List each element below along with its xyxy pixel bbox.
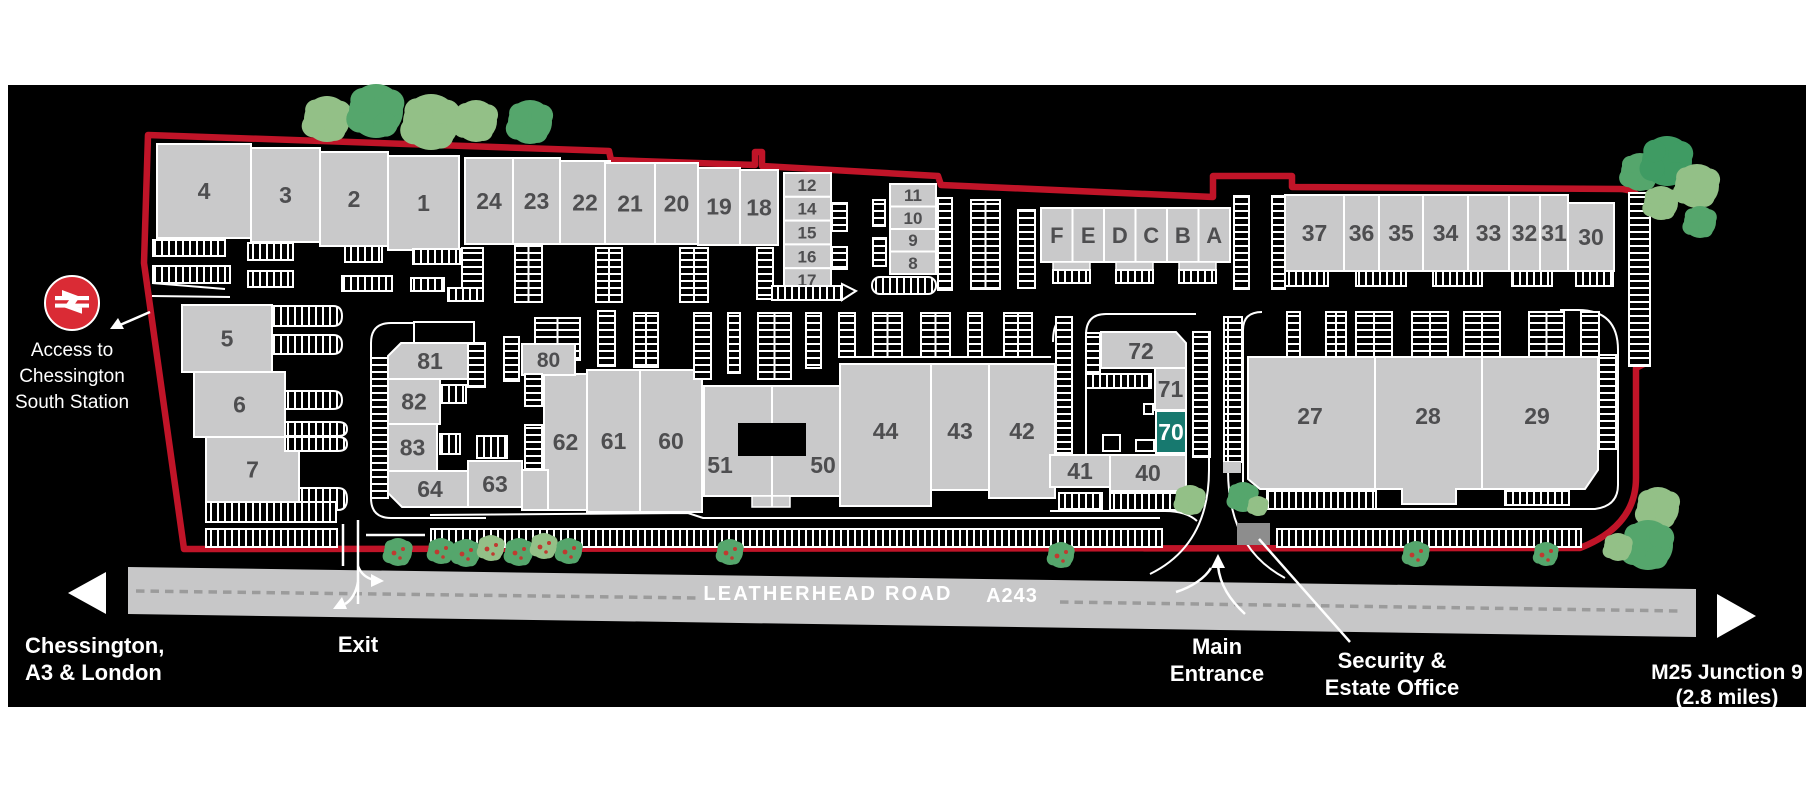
svg-text:81: 81 xyxy=(417,348,443,374)
svg-text:1: 1 xyxy=(417,190,430,216)
svg-text:D: D xyxy=(1112,223,1128,248)
svg-text:(2.8 miles): (2.8 miles) xyxy=(1676,686,1779,709)
svg-text:Chessington: Chessington xyxy=(19,366,125,387)
svg-text:72: 72 xyxy=(1128,338,1154,364)
svg-text:41: 41 xyxy=(1067,458,1093,484)
svg-text:51: 51 xyxy=(707,452,733,478)
svg-text:7: 7 xyxy=(246,457,259,483)
svg-text:71: 71 xyxy=(1158,376,1184,402)
svg-text:27: 27 xyxy=(1297,403,1323,429)
svg-text:5: 5 xyxy=(221,326,234,352)
svg-text:LEATHERHEAD ROAD: LEATHERHEAD ROAD xyxy=(703,583,952,605)
svg-text:83: 83 xyxy=(400,435,426,461)
svg-text:Security &: Security & xyxy=(1338,648,1447,673)
svg-text:15: 15 xyxy=(798,224,817,243)
svg-text:10: 10 xyxy=(904,209,923,228)
svg-text:36: 36 xyxy=(1349,220,1375,246)
svg-text:16: 16 xyxy=(798,247,817,266)
svg-text:63: 63 xyxy=(482,471,508,497)
svg-text:14: 14 xyxy=(798,200,817,219)
svg-text:E: E xyxy=(1081,223,1096,248)
svg-text:Access to: Access to xyxy=(31,340,113,361)
svg-text:Entrance: Entrance xyxy=(1170,661,1264,686)
svg-text:Chessington,: Chessington, xyxy=(25,633,164,658)
svg-text:64: 64 xyxy=(417,476,443,502)
svg-text:24: 24 xyxy=(476,188,502,214)
svg-text:21: 21 xyxy=(617,191,643,217)
svg-text:61: 61 xyxy=(601,428,627,454)
svg-text:70: 70 xyxy=(1158,419,1184,445)
svg-text:A3 & London: A3 & London xyxy=(25,660,162,685)
svg-text:31: 31 xyxy=(1541,220,1567,246)
svg-text:35: 35 xyxy=(1388,220,1414,246)
svg-text:A: A xyxy=(1206,223,1222,248)
svg-text:28: 28 xyxy=(1415,403,1441,429)
svg-text:40: 40 xyxy=(1135,460,1161,486)
svg-text:3: 3 xyxy=(279,182,292,208)
svg-text:32: 32 xyxy=(1512,220,1538,246)
svg-text:20: 20 xyxy=(664,191,690,217)
svg-text:F: F xyxy=(1050,223,1063,248)
svg-text:Main: Main xyxy=(1192,634,1242,659)
svg-text:34: 34 xyxy=(1433,220,1459,246)
svg-text:37: 37 xyxy=(1302,220,1328,246)
svg-text:29: 29 xyxy=(1524,403,1550,429)
svg-text:50: 50 xyxy=(810,452,836,478)
svg-text:23: 23 xyxy=(524,188,550,214)
svg-text:4: 4 xyxy=(198,178,211,204)
svg-text:South Station: South Station xyxy=(15,392,129,413)
svg-text:12: 12 xyxy=(798,176,817,195)
svg-text:6: 6 xyxy=(233,392,246,418)
svg-text:9: 9 xyxy=(908,231,917,250)
svg-text:B: B xyxy=(1175,223,1191,248)
svg-text:42: 42 xyxy=(1009,418,1035,444)
svg-text:M25 Junction 9: M25 Junction 9 xyxy=(1651,661,1803,684)
svg-text:18: 18 xyxy=(746,195,772,221)
svg-text:11: 11 xyxy=(904,186,922,205)
svg-text:A243: A243 xyxy=(986,585,1038,607)
svg-text:Estate Office: Estate Office xyxy=(1325,675,1460,700)
svg-text:2: 2 xyxy=(348,186,361,212)
svg-text:60: 60 xyxy=(658,428,684,454)
svg-text:22: 22 xyxy=(572,190,598,216)
svg-text:Exit: Exit xyxy=(338,632,379,657)
svg-text:44: 44 xyxy=(873,418,899,444)
svg-text:33: 33 xyxy=(1476,220,1502,246)
svg-text:62: 62 xyxy=(553,429,579,455)
svg-text:80: 80 xyxy=(537,349,560,372)
svg-text:19: 19 xyxy=(706,194,732,220)
svg-text:C: C xyxy=(1143,223,1159,248)
svg-text:30: 30 xyxy=(1578,224,1604,250)
svg-text:82: 82 xyxy=(401,389,427,415)
svg-text:8: 8 xyxy=(908,254,917,273)
svg-text:43: 43 xyxy=(947,418,973,444)
